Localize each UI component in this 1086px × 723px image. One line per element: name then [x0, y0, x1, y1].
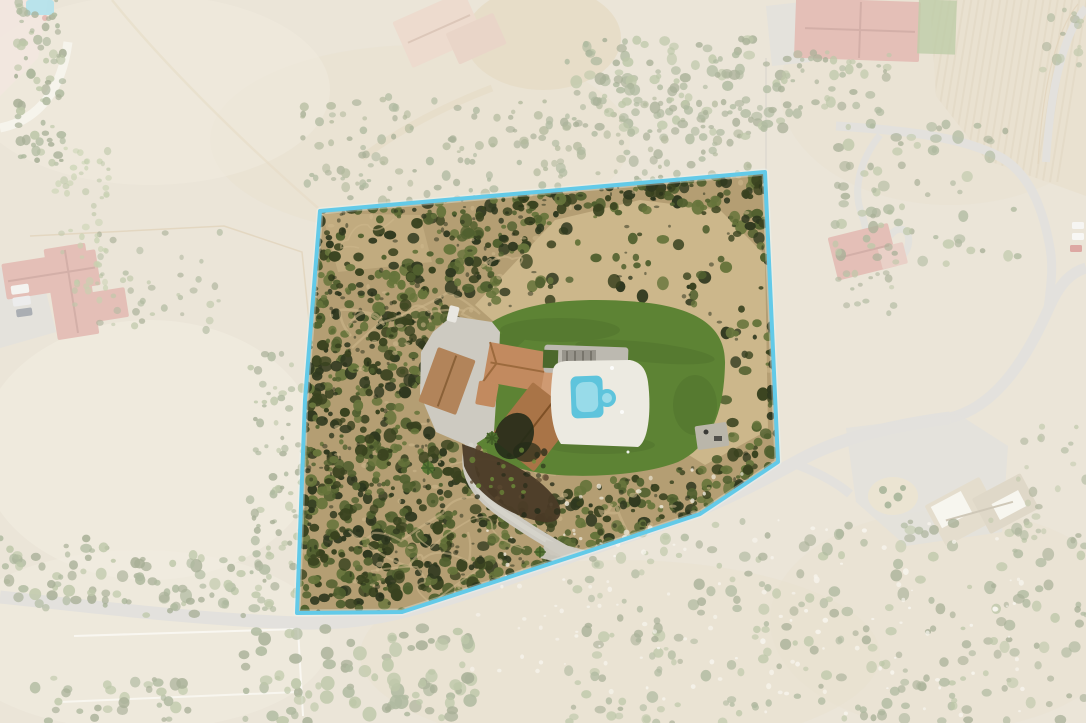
aerial-photo — [0, 0, 1086, 723]
pool-shallow — [575, 382, 598, 413]
side-pad — [694, 422, 729, 450]
lawn-marker-dot — [627, 451, 630, 454]
aerial-photograph-canvas — [0, 0, 1086, 723]
spa-center — [602, 393, 612, 403]
